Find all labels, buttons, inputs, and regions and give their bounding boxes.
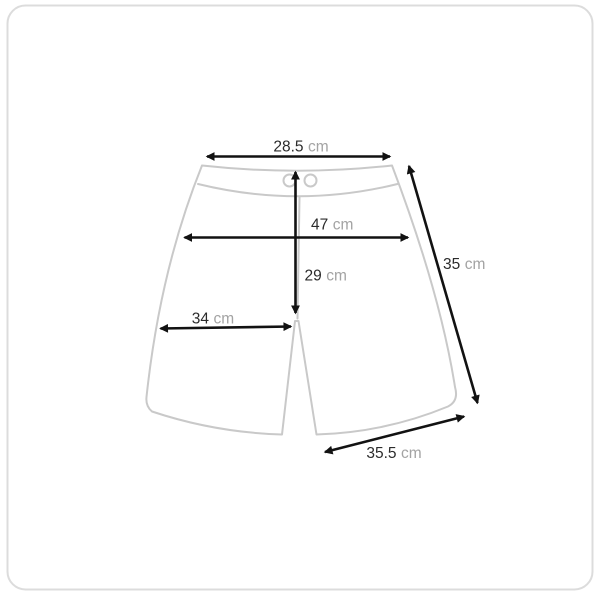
dim-side-length-unit: cm (465, 256, 486, 273)
dim-hip-width-label: 47cm (311, 217, 353, 234)
dim-hip-width-unit: cm (333, 217, 354, 234)
dim-waist-width-value: 28.5 (273, 139, 303, 156)
dim-waist-width-unit: cm (308, 139, 329, 156)
dim-rise-length-label: 29cm (305, 268, 347, 285)
dim-hem-width-label: 35.5cm (366, 445, 421, 462)
dim-side-length-value: 35 (443, 256, 460, 273)
dim-hem-width-unit: cm (401, 445, 422, 462)
dim-side-length-label: 35cm (443, 256, 485, 273)
dim-rise-length-value: 29 (305, 268, 322, 285)
shorts-measurement-diagram: 28.5cm 47cm 29cm 34cm 35cm 35.5cm (0, 0, 600, 600)
measurement-card: 28.5cm 47cm 29cm 34cm 35cm 35.5cm (0, 0, 600, 600)
card-border (8, 6, 593, 590)
dim-waist-width-label: 28.5cm (273, 139, 328, 156)
dim-rise-length-unit: cm (326, 268, 347, 285)
dim-thigh-width-label: 34cm (192, 311, 234, 328)
dim-hip-width-value: 47 (311, 217, 328, 234)
dim-thigh-width-value: 34 (192, 311, 210, 328)
dim-hem-width-value: 35.5 (366, 445, 396, 462)
dim-thigh-width-unit: cm (214, 311, 235, 328)
